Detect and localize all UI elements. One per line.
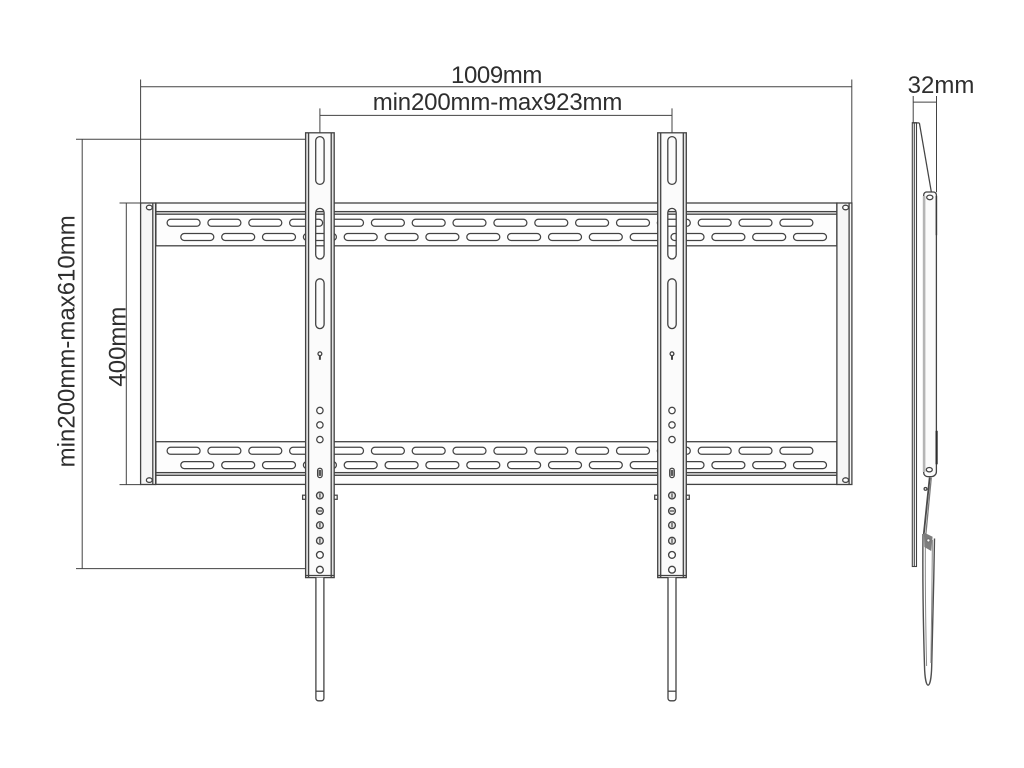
svg-text:min200mm-max610mm: min200mm-max610mm: [54, 215, 81, 467]
svg-text:1009mm: 1009mm: [451, 62, 542, 89]
svg-text:400mm: 400mm: [104, 307, 131, 387]
svg-text:min200mm-max923mm: min200mm-max923mm: [373, 89, 623, 116]
svg-text:32mm: 32mm: [908, 72, 975, 99]
